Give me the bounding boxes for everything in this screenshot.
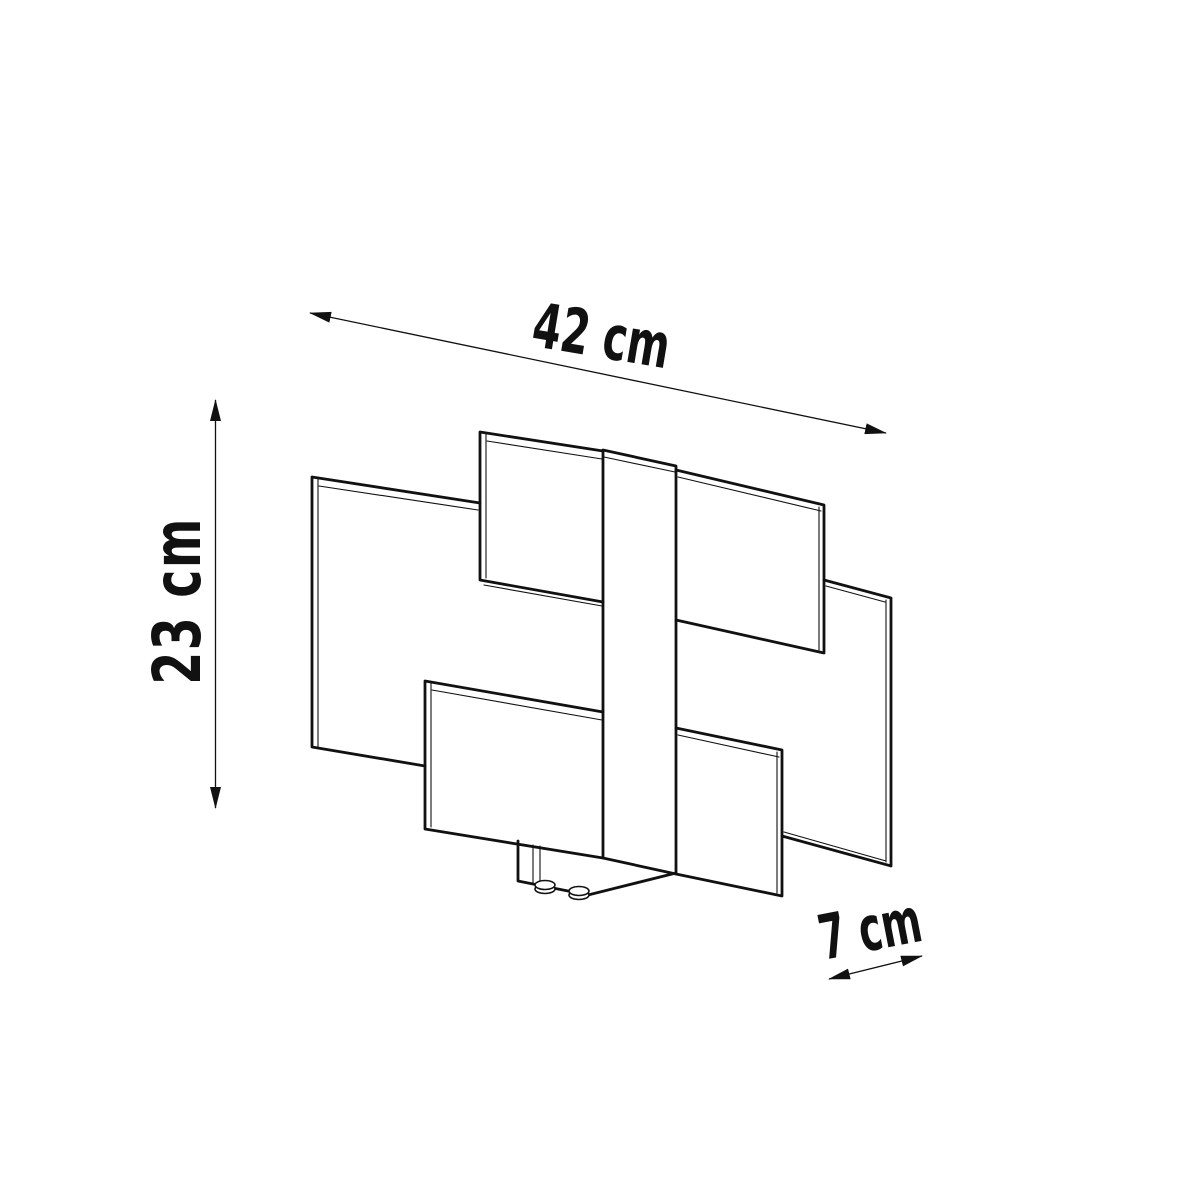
mounting-bracket [518, 841, 676, 900]
width-dimension: 42 cm [310, 290, 886, 433]
width-dimension-label: 42 cm [527, 290, 675, 384]
glass-panel-top-right [676, 470, 824, 653]
height-dimension-label: 23 cm [139, 517, 216, 685]
glass-panel-middle-left [312, 477, 480, 766]
depth-dimension: 7 cm [813, 885, 928, 979]
lamp-dimension-diagram: 42 cm 23 cm 7 cm [0, 0, 1200, 1200]
lamp-drawing [312, 432, 891, 900]
glass-panel-top-left [480, 432, 603, 606]
height-dimension: 23 cm [139, 400, 216, 808]
glass-panel-bottom-left [425, 681, 603, 858]
glass-panel-middle-right [782, 580, 891, 866]
dimension-diagram-page: 42 cm 23 cm 7 cm [0, 0, 1200, 1200]
depth-dimension-label: 7 cm [813, 885, 928, 975]
screw-knob-icon [535, 881, 555, 894]
mounting-strip [603, 450, 676, 874]
screw-knob-icon [569, 887, 589, 900]
glass-panel-bottom-right [676, 728, 782, 896]
